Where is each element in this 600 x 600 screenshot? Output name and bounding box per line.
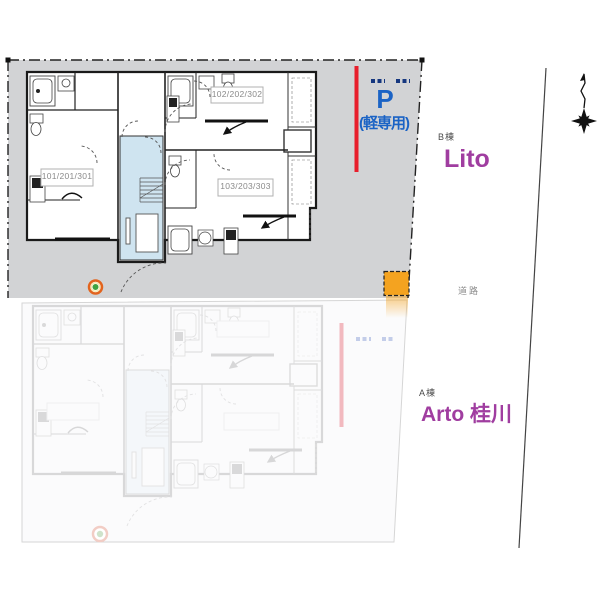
parking-note: (軽専用) [336, 112, 432, 133]
unit-label-102: 102/202/302 [211, 89, 263, 99]
building-b-name: Lito [444, 145, 490, 174]
unit-label-103: 103/203/303 [218, 181, 273, 191]
north-compass-icon [571, 73, 597, 134]
faded-utility-marker [93, 527, 107, 541]
boundary-corner-dot [6, 58, 11, 63]
site-plan-canvas [0, 0, 600, 600]
site-plan-page: 101/201/301 102/202/302 103/203/303 P (軽… [0, 0, 600, 600]
road-edge-line [519, 68, 546, 548]
utility-marker [89, 281, 102, 294]
faded-orange-marker [386, 296, 408, 318]
orange-entrance-marker [384, 272, 409, 296]
unit-label-101: 101/201/301 [41, 171, 93, 181]
boundary-corner-dot [420, 58, 425, 63]
building-b-tag: B棟 [438, 130, 455, 143]
road-label: 道路 [458, 284, 480, 297]
faded-parking-line [340, 323, 344, 427]
building-a-name: Arto 桂川 [421, 398, 512, 428]
parking-symbol: P [360, 84, 410, 115]
